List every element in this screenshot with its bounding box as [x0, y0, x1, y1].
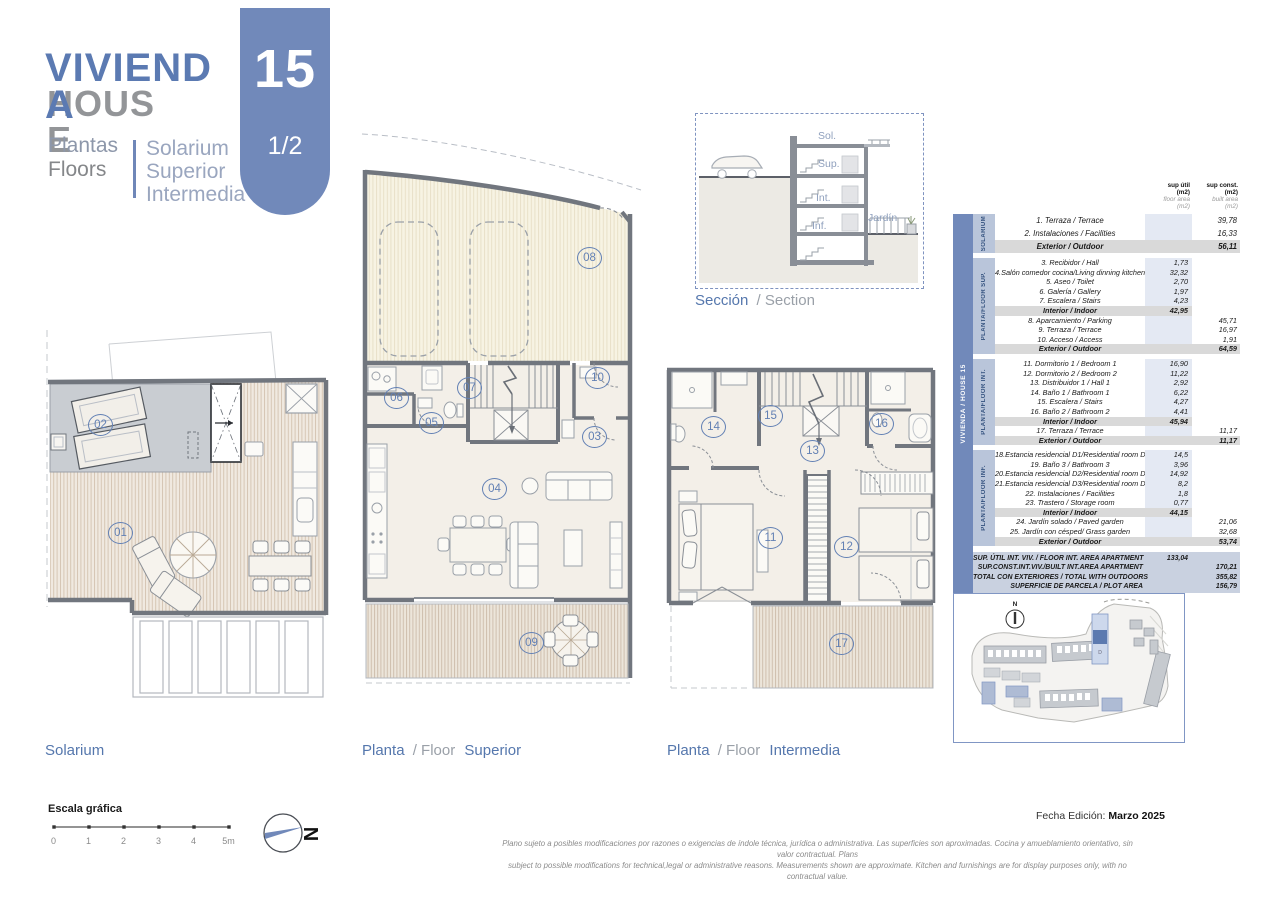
table-cell: Interior / Indoor [995, 508, 1145, 518]
table-cell: 4,27 [1145, 397, 1192, 407]
subtitle-spanish: Plantas [48, 134, 118, 158]
table-cell [1145, 537, 1192, 547]
disclaimer: Plano sujeto a posibles modificaciones p… [495, 838, 1140, 882]
floor-plan-name: Solarium [146, 137, 245, 160]
table-cell: 156,79 [1192, 582, 1240, 591]
caption-text: Solarium [45, 742, 104, 759]
section-label-superior: Sup. [818, 158, 840, 170]
solarium-plan-drawing [43, 322, 330, 735]
table-cell: 32,32 [1145, 268, 1192, 278]
table-cell: 44,15 [1145, 508, 1192, 518]
caption-text-name: Intermedia [769, 742, 840, 759]
table-cell: 19. Baño 3 / Bathroom 3 [995, 460, 1145, 470]
table-cell [1192, 258, 1240, 268]
floors-list: SolariumSuperiorIntermedia [146, 137, 245, 206]
section-drawing-svg [696, 114, 921, 286]
scale-bar [46, 820, 246, 834]
table-cell: 4,23 [1145, 296, 1192, 306]
table-cell [1145, 344, 1192, 354]
caption-text-en: / Floor [413, 742, 456, 759]
room-number-circle: 08 [577, 247, 602, 269]
table-cell: 1,8 [1145, 489, 1192, 499]
site-north-label: N [1013, 601, 1018, 608]
room-number-circle: 15 [758, 405, 783, 427]
caption-text-es: Planta [667, 742, 710, 759]
table-cell: 18.Estancia residencial D1/Residential r… [995, 450, 1145, 460]
area-table: sup útil (m2) floor area (m2) sup const.… [953, 182, 1240, 593]
table-summary: SUP. ÚTIL INT. VIV. / FLOOR INT. AREA AP… [973, 552, 1240, 593]
table-cell [1192, 296, 1240, 306]
scale-title: Escala gráfica [48, 803, 122, 815]
floor-plan-intermedia: 11121314151617 [663, 358, 948, 738]
room-number-circle: 17 [829, 633, 854, 655]
scale-tick: 3 [141, 836, 176, 846]
table-cell: 20.Estancia residencial D2/Residential r… [995, 469, 1145, 479]
subtitle: Plantas Floors [48, 134, 118, 182]
section-label-intermedia: Int. [816, 192, 831, 204]
caption-intermedia: Planta / Floor Intermedia [667, 742, 840, 759]
section-caption: Sección / Section [695, 292, 815, 309]
table-cell: 16. Baño 2 / Bathroom 2 [995, 407, 1145, 417]
floor-plan-superior: 0304050607080910 [358, 126, 645, 718]
room-number-circle: 12 [834, 536, 859, 558]
north-arrow: N [256, 806, 326, 862]
room-number-circle: 10 [585, 367, 610, 389]
table-house-bar-label: VIVIENDA / HOUSE 15 [960, 364, 967, 443]
table-section-bar: PLANTA/FLOOR SUP. [973, 258, 995, 354]
table-cell: Interior / Indoor [995, 417, 1145, 427]
table-cell: 11,17 [1192, 436, 1240, 446]
table-cell [1192, 450, 1240, 460]
table-cell: 5. Aseo / Toilet [995, 277, 1145, 287]
unit-number: 15 [240, 38, 330, 100]
table-cell: 42,95 [1145, 306, 1192, 316]
table-cell: Exterior / Outdoor [995, 436, 1145, 446]
subtitle-english: Floors [48, 158, 118, 182]
table-cell: 1,97 [1145, 287, 1192, 297]
table-cell: 1. Terraza / Terrace [995, 214, 1145, 227]
table-cell: 12. Dormitorio 2 / Bedroom 2 [995, 369, 1145, 379]
caption-text-en: / Floor [718, 742, 761, 759]
north-letter: N [299, 827, 321, 841]
master-site-plan: D N [953, 593, 1185, 743]
table-cell [1192, 417, 1240, 427]
page-indicator: 1/2 [240, 132, 330, 161]
scale-tick: 1 [71, 836, 106, 846]
table-cell: 39,78 [1192, 214, 1240, 227]
table-cell: 2,92 [1145, 378, 1192, 388]
table-cell: Exterior / Outdoor [995, 537, 1145, 547]
table-cell: 8,2 [1145, 479, 1192, 489]
unit-number-tab: 15 1/2 [240, 8, 330, 215]
table-cell: 45,94 [1145, 417, 1192, 427]
scale-tick-labels: 012345m [36, 836, 246, 846]
table-cell: Exterior / Outdoor [995, 344, 1145, 354]
room-number-circle: 02 [88, 414, 113, 436]
room-number-circle: 03 [582, 426, 607, 448]
table-cell: 15. Escalera / Stairs [995, 397, 1145, 407]
table-cell: 14,5 [1145, 450, 1192, 460]
edition-date: Fecha Edición: Marzo 2025 [1000, 810, 1165, 822]
table-cell [1192, 469, 1240, 479]
table-cell [1192, 378, 1240, 388]
table-cell: 4,41 [1145, 407, 1192, 417]
table-cell: Exterior / Outdoor [995, 240, 1145, 253]
table-cell: 3. Recibidor / Hall [995, 258, 1145, 268]
table-column-headers: sup útil (m2) floor area (m2) sup const.… [953, 182, 1240, 212]
room-number-circle: 04 [482, 478, 507, 500]
room-number-circle: 16 [869, 413, 894, 435]
room-number-circle: 11 [758, 527, 783, 549]
floor-plan-name: Intermedia [146, 183, 245, 206]
table-cell [1145, 227, 1192, 240]
table-cell: 2,70 [1145, 277, 1192, 287]
table-cell: 10. Acceso / Access [995, 335, 1145, 345]
site-plan-drawing: D N [954, 594, 1182, 740]
table-cell [1192, 508, 1240, 518]
table-cell [1145, 563, 1192, 572]
table-cell: 25. Jardín con césped/ Grass garden [995, 527, 1145, 537]
table-cell: 13. Distribuidor 1 / Hall 1 [995, 378, 1145, 388]
table-section-bar: PLANTA/FLOOR INT. [973, 359, 995, 445]
column-header-const: sup const. (m2) built area (m2) [1193, 182, 1238, 210]
table-cell [1145, 573, 1192, 582]
table-cell: 9. Terraza / Terrace [995, 325, 1145, 335]
scale-tick: 4 [176, 836, 211, 846]
table-cell: 355,82 [1192, 573, 1240, 582]
table-cell: 45,71 [1192, 316, 1240, 326]
intermedia-plan-drawing [663, 358, 948, 738]
table-section: PLANTA/FLOOR SUP.3. Recibidor / Hall1,73… [973, 258, 1240, 354]
room-number-circle: 13 [800, 440, 825, 462]
table-cell [1145, 426, 1192, 436]
table-cell: 21,06 [1192, 517, 1240, 527]
table-cell: 56,11 [1192, 240, 1240, 253]
table-section: SOLARIUM1. Terraza / Terrace39,782. Inst… [973, 214, 1240, 253]
disclaimer-line-1: Plano sujeto a posibles modificaciones p… [495, 838, 1140, 860]
table-cell: 1,91 [1192, 335, 1240, 345]
disclaimer-line-2: subject to possible modifications for te… [495, 860, 1140, 882]
table-cell [1192, 554, 1240, 563]
table-cell [1192, 498, 1240, 508]
table-cell: 23. Trastero / Storage room [995, 498, 1145, 508]
table-cell [1145, 335, 1192, 345]
table-house-bar: VIVIENDA / HOUSE 15 [953, 214, 973, 593]
table-cell: 17. Terraza / Terrace [995, 426, 1145, 436]
table-cell: 2. Instalaciones / Facilities [995, 227, 1145, 240]
section-caption-en: / Section [757, 292, 815, 309]
room-number-circle: 01 [108, 522, 133, 544]
column-header-util: sup útil (m2) floor area (m2) [1145, 182, 1190, 210]
caption-text-es: Planta [362, 742, 405, 759]
section-drawing: Sol. Sup. Int. Inf. Jardín [695, 113, 924, 289]
table-cell: 22. Instalaciones / Facilities [995, 489, 1145, 499]
table-cell: 6. Galería / Gallery [995, 287, 1145, 297]
room-number-circle: 07 [457, 377, 482, 399]
table-cell [1192, 287, 1240, 297]
title-spanish: VIVIENDA [45, 50, 215, 124]
section-caption-es: Sección [695, 292, 748, 309]
table-cell [1192, 306, 1240, 316]
caption-solarium: Solarium [45, 742, 104, 759]
table-section: PLANTA/FLOOR INT.11. Dormitorio 1 / Bedr… [973, 359, 1240, 445]
edition-value: Marzo 2025 [1108, 810, 1165, 822]
table-cell: 53,74 [1192, 537, 1240, 547]
table-body: VIVIENDA / HOUSE 15 SOLARIUM1. Terraza /… [953, 214, 1240, 593]
table-cell [1192, 359, 1240, 369]
floor-plan-solarium: 0102 [43, 322, 330, 735]
section-label-solarium: Sol. [818, 130, 836, 142]
table-cell: 11,22 [1145, 369, 1192, 379]
table-cell: 24. Jardín solado / Paved garden [995, 517, 1145, 527]
section-label-garden: Jardín [868, 212, 897, 224]
table-cell [1192, 397, 1240, 407]
table-cell: 8. Aparcamiento / Parking [995, 316, 1145, 326]
table-cell: SUP.CONST.INT.VIV./BUILT INT.AREA APARTM… [973, 563, 1145, 572]
table-cell [1192, 460, 1240, 470]
room-number-circle: 05 [419, 412, 444, 434]
table-cell: 32,68 [1192, 527, 1240, 537]
room-number-circle: 09 [519, 632, 544, 654]
table-cell [1192, 369, 1240, 379]
site-unit-letter: D [1098, 650, 1102, 656]
section-label-inferior: Inf. [812, 220, 827, 232]
table-cell [1192, 277, 1240, 287]
table-cell: 21.Estancia residencial D3/Residential r… [995, 479, 1145, 489]
table-cell: 11,17 [1192, 426, 1240, 436]
plan-sheet: VIVIENDA HOUSE Plantas Floors SolariumSu… [0, 0, 1280, 905]
table-cell: 16,90 [1145, 359, 1192, 369]
table-cell: 14. Baño 1 / Bathroom 1 [995, 388, 1145, 398]
scale-tick: 5m [211, 836, 246, 846]
table-cell: Interior / Indoor [995, 306, 1145, 316]
table-cell [1145, 527, 1192, 537]
table-cell [1145, 436, 1192, 446]
table-section-bar: PLANTA/FLOOR INF. [973, 450, 995, 546]
table-cell: 7. Escalera / Stairs [995, 296, 1145, 306]
table-cell: 16,97 [1192, 325, 1240, 335]
table-section: PLANTA/FLOOR INF.18.Estancia residencial… [973, 450, 1240, 546]
table-cell: TOTAL CON EXTERIORES / TOTAL WITH OUTDOO… [973, 573, 1145, 582]
table-cell: 0,77 [1145, 498, 1192, 508]
scale-tick: 2 [106, 836, 141, 846]
table-cell [1192, 388, 1240, 398]
table-cell: 1,73 [1145, 258, 1192, 268]
table-cell: 133,04 [1145, 554, 1192, 563]
table-cell [1192, 489, 1240, 499]
table-cell: 4.Salón comedor cocina/Living dinning ki… [995, 268, 1145, 278]
table-cell: SUP. ÚTIL INT. VIV. / FLOOR INT. AREA AP… [973, 554, 1145, 563]
table-cell: 64,59 [1192, 344, 1240, 354]
table-cell: 170,21 [1192, 563, 1240, 572]
room-number-circle: 14 [701, 416, 726, 438]
table-cell [1145, 240, 1192, 253]
table-cell: 3,96 [1145, 460, 1192, 470]
table-cell [1145, 582, 1192, 591]
table-cell [1192, 479, 1240, 489]
scale-tick: 0 [36, 836, 71, 846]
table-cell: 14,92 [1145, 469, 1192, 479]
table-cell: 6,22 [1145, 388, 1192, 398]
table-cell [1145, 214, 1192, 227]
room-number-circle: 06 [384, 387, 409, 409]
superior-plan-drawing [358, 126, 645, 718]
caption-superior: Planta / Floor Superior [362, 742, 521, 759]
table-cell [1192, 407, 1240, 417]
table-cell: 11. Dormitorio 1 / Bedroom 1 [995, 359, 1145, 369]
table-cell [1145, 325, 1192, 335]
caption-text-name: Superior [464, 742, 521, 759]
table-cell [1145, 316, 1192, 326]
table-cell: SUPERFICIE DE PARCELA / PLOT AREA [973, 582, 1145, 591]
table-cell: 16,33 [1192, 227, 1240, 240]
header-divider [133, 140, 136, 198]
table-section-bar: SOLARIUM [973, 214, 995, 253]
table-cell [1192, 268, 1240, 278]
table-cell [1145, 517, 1192, 527]
edition-label: Fecha Edición: [1036, 810, 1105, 822]
floor-plan-name: Superior [146, 160, 245, 183]
